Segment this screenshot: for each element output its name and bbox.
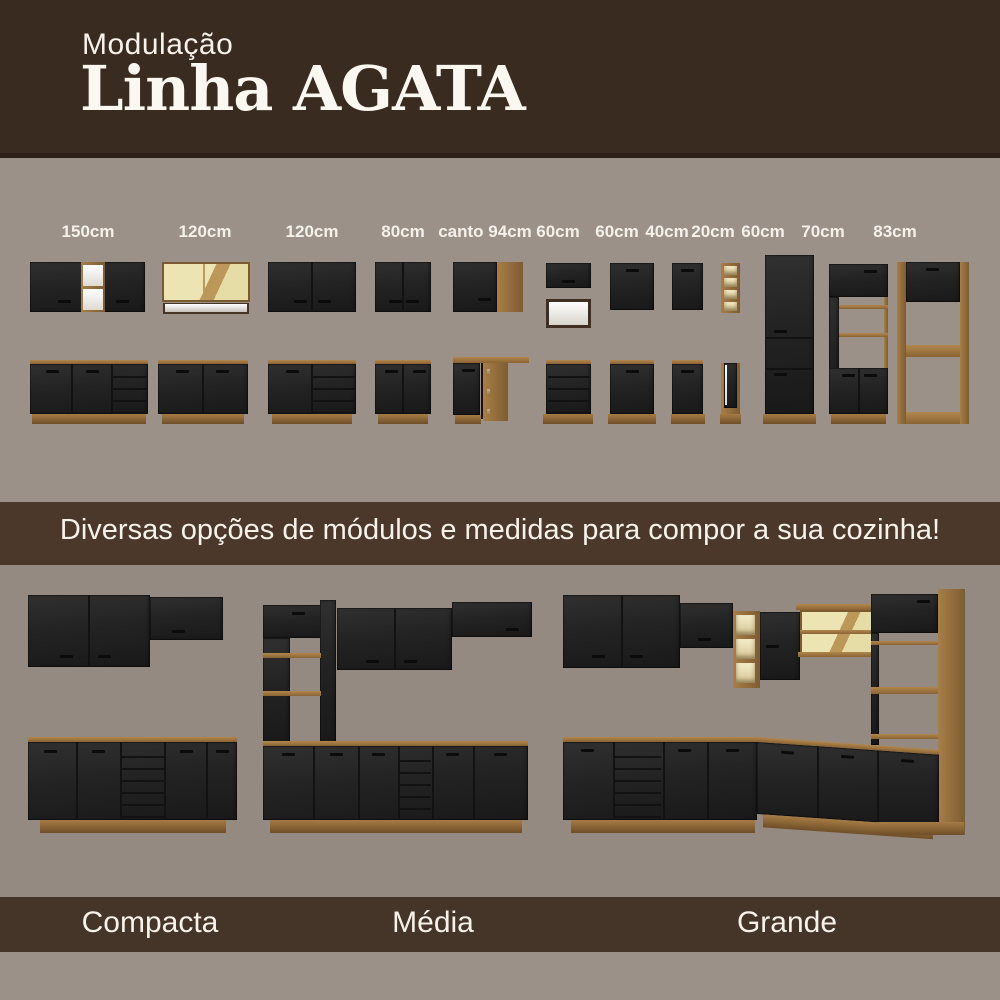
- door-handle: [292, 612, 305, 615]
- tower-top-cabinet: [263, 605, 325, 638]
- door-handle: [58, 300, 71, 303]
- drawer-stack: [615, 746, 661, 818]
- door-handle: [86, 370, 99, 373]
- door-handle: [917, 600, 930, 603]
- open-niche: [83, 265, 103, 286]
- open-niche: [83, 289, 103, 310]
- wall-cabinet-step: [680, 603, 733, 648]
- door-handle: [864, 374, 877, 377]
- module-label-120cm-a: 120cm: [150, 222, 260, 242]
- wall-cabinet-step: [150, 597, 223, 640]
- base-run: [263, 746, 528, 820]
- door-split: [858, 368, 860, 414]
- niche-cell: [724, 278, 737, 287]
- door-handle: [404, 660, 417, 663]
- thick-shelf: [906, 345, 960, 357]
- footer-label-compacta: Compacta: [40, 906, 260, 940]
- drawer-stack: [113, 366, 148, 414]
- door-handle: [92, 750, 105, 753]
- door-handle: [216, 370, 229, 373]
- frame-right-stile: [960, 262, 969, 424]
- corner-wall-cabinet: [453, 262, 497, 312]
- door-handle: [842, 374, 855, 377]
- shelf: [871, 687, 938, 694]
- niche-cell: [724, 302, 737, 311]
- hinge: [487, 389, 490, 394]
- drawer-stack: [400, 750, 431, 818]
- door-handle: [478, 298, 491, 301]
- door-split: [164, 742, 166, 820]
- glass-cabinet: [162, 262, 250, 302]
- door-handle: [176, 370, 189, 373]
- shelf: [263, 653, 321, 658]
- shelf-cell: [736, 639, 755, 659]
- tower-right-pillar: [320, 600, 336, 746]
- door-handle: [726, 749, 739, 752]
- door-handle: [562, 280, 575, 283]
- door-handle: [216, 750, 229, 753]
- door-handle: [413, 370, 426, 373]
- glass-door-split: [203, 264, 205, 300]
- plinth: [671, 414, 705, 424]
- door-handle: [385, 370, 398, 373]
- plinth: [40, 820, 226, 833]
- door-split: [402, 364, 404, 414]
- niche-cell: [724, 290, 737, 299]
- drawer-stack: [313, 366, 356, 414]
- tall-cabinet: [765, 255, 814, 414]
- shelf: [871, 641, 938, 645]
- modules-band: [0, 158, 1000, 502]
- tower-top-cabinet: [829, 264, 888, 297]
- shelf: [839, 305, 888, 309]
- door-handle: [180, 750, 193, 753]
- door-handle: [44, 750, 57, 753]
- frame-left-stile: [897, 262, 906, 424]
- plinth: [763, 414, 816, 424]
- door-handle: [172, 630, 185, 633]
- plinth: [32, 414, 146, 424]
- door-handle: [494, 753, 507, 756]
- door-handle: [462, 369, 475, 372]
- module-label-150cm: 150cm: [33, 222, 143, 242]
- hinge: [487, 369, 490, 374]
- shelf-cell: [736, 615, 755, 635]
- shelf: [839, 333, 888, 337]
- door-handle: [592, 655, 605, 658]
- door-split: [621, 595, 623, 668]
- plinth: [162, 414, 244, 424]
- door-split: [71, 364, 73, 414]
- door-handle: [626, 269, 639, 272]
- door-handle: [774, 330, 787, 333]
- footer-label-grande: Grande: [677, 906, 897, 940]
- bottom-gray-strip: [0, 952, 1000, 1000]
- door-split: [663, 742, 665, 820]
- door-handle: [698, 638, 711, 641]
- shelf: [871, 734, 938, 739]
- plinth: [720, 414, 741, 424]
- door-handle: [294, 300, 307, 303]
- plinth: [608, 414, 656, 424]
- door-handle: [774, 373, 787, 376]
- door-handle: [446, 753, 459, 756]
- door-split: [313, 746, 315, 820]
- door-split: [473, 746, 475, 820]
- plinth: [543, 414, 593, 424]
- wall-cabinet: [546, 263, 591, 288]
- plinth: [270, 820, 522, 833]
- door-handle: [506, 628, 519, 631]
- door-handle: [286, 370, 299, 373]
- door-handle: [630, 655, 643, 658]
- door-handle: [926, 268, 939, 271]
- door-split: [765, 337, 814, 339]
- page-title: Linha AGATA: [80, 52, 525, 125]
- door-handle: [330, 753, 343, 756]
- door-handle: [766, 645, 779, 648]
- light-edge: [725, 365, 727, 405]
- tower-side-panel: [938, 589, 965, 835]
- banner-text: Diversas opções de módulos e medidas par…: [0, 514, 1000, 547]
- door-handle: [98, 655, 111, 658]
- door-handle: [678, 749, 691, 752]
- door-handle: [282, 753, 295, 756]
- door-split: [311, 262, 313, 312]
- door-handle: [318, 300, 331, 303]
- poster: Modulação Linha AGATA 150cm 120cm 120cm …: [0, 0, 1000, 1000]
- plinth: [571, 820, 755, 833]
- plinth: [455, 415, 481, 424]
- door-handle: [864, 270, 877, 273]
- door-handle: [581, 749, 594, 752]
- door-handle: [406, 300, 419, 303]
- door-handle: [372, 753, 385, 756]
- open-niche: [546, 299, 591, 328]
- door-split: [402, 262, 404, 312]
- door-handle: [366, 660, 379, 663]
- glass-cabinet-band: [800, 630, 873, 634]
- door-split: [76, 742, 78, 820]
- shelf-cell: [736, 663, 755, 683]
- wall-cabinet-step: [452, 602, 532, 637]
- door-split: [765, 368, 814, 370]
- corner-side-panel: [497, 262, 523, 312]
- tower-plinth: [876, 822, 964, 835]
- glass-cabinet-base: [798, 652, 876, 657]
- door-split: [877, 750, 879, 822]
- niche-cell: [724, 266, 737, 275]
- door-handle: [681, 370, 694, 373]
- door-split: [88, 595, 90, 667]
- door-handle: [46, 370, 59, 373]
- shelf: [263, 691, 321, 696]
- door-handle: [60, 655, 73, 658]
- module-label-83cm: 83cm: [840, 222, 950, 242]
- drawer-stack: [548, 366, 589, 414]
- door-split: [817, 746, 819, 818]
- footer-label-media: Média: [323, 906, 543, 940]
- plinth: [378, 414, 428, 424]
- door-split: [358, 746, 360, 820]
- plinth: [831, 414, 886, 424]
- plinth: [272, 414, 352, 424]
- open-shelf: [163, 303, 249, 314]
- door-handle: [116, 300, 129, 303]
- door-split: [394, 608, 396, 670]
- door-handle: [626, 370, 639, 373]
- hinge: [487, 409, 490, 414]
- door-split: [202, 364, 204, 414]
- door-handle: [681, 269, 694, 272]
- drawer-stack: [122, 746, 164, 818]
- door-handle: [389, 300, 402, 303]
- door-split: [206, 742, 208, 820]
- thick-shelf: [906, 412, 960, 424]
- door-split: [432, 746, 434, 820]
- door-split: [707, 742, 709, 820]
